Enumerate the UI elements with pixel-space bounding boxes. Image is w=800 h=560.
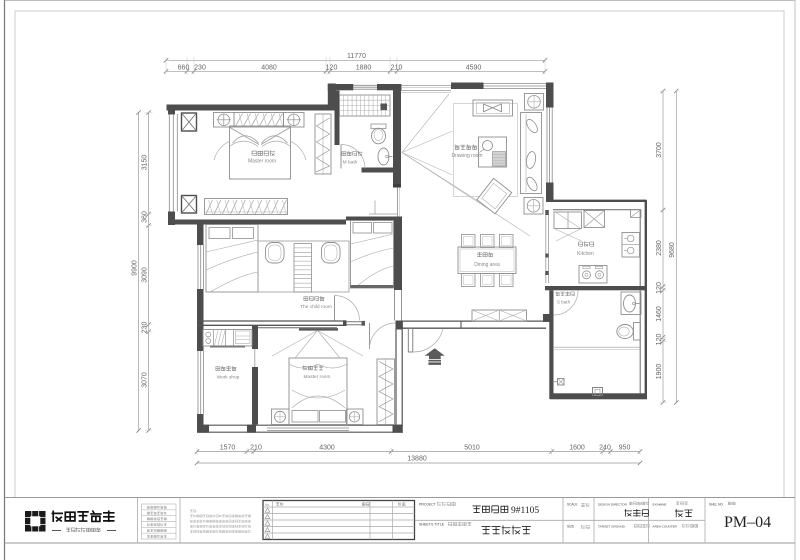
svg-text:SHEL NO.: SHEL NO. xyxy=(709,503,724,507)
svg-text:EXAMINE: EXAMINE xyxy=(653,503,667,507)
svg-text:11770: 11770 xyxy=(347,53,366,60)
svg-text:210: 210 xyxy=(250,445,262,452)
svg-text:Dining area: Dining area xyxy=(474,262,500,268)
svg-text:4590: 4590 xyxy=(466,64,482,71)
svg-text:13880: 13880 xyxy=(407,456,427,463)
svg-text:No.: No. xyxy=(265,503,270,507)
svg-text:120: 120 xyxy=(326,64,338,71)
svg-text:PM–04: PM–04 xyxy=(724,514,771,531)
svg-text:360: 360 xyxy=(142,211,149,223)
svg-text:4080: 4080 xyxy=(261,64,277,71)
svg-text:Master room: Master room xyxy=(304,374,331,380)
svg-text:Kitchen: Kitchen xyxy=(577,251,594,257)
svg-text:210: 210 xyxy=(391,64,403,71)
svg-text:S bath: S bath xyxy=(557,300,571,305)
svg-text:9#1105: 9#1105 xyxy=(511,506,539,516)
svg-text:3150: 3150 xyxy=(142,155,149,171)
svg-text:120: 120 xyxy=(656,282,663,294)
svg-text:3070: 3070 xyxy=(142,372,149,388)
svg-text:4300: 4300 xyxy=(319,445,335,452)
svg-text:1880: 1880 xyxy=(356,64,372,71)
svg-text:M bath: M bath xyxy=(343,160,358,166)
svg-text:2380: 2380 xyxy=(656,240,663,256)
svg-text:Work shop: Work shop xyxy=(217,375,240,381)
svg-text:240: 240 xyxy=(599,445,611,452)
svg-text:The child room: The child room xyxy=(300,304,332,310)
svg-text:TARGET GROUND: TARGET GROUND xyxy=(598,525,626,529)
svg-text:660: 660 xyxy=(178,64,190,71)
svg-text:5010: 5010 xyxy=(464,445,480,452)
svg-text:3090: 3090 xyxy=(142,267,149,283)
svg-text:SIZE: SIZE xyxy=(567,525,574,529)
svg-text:Drawing room: Drawing room xyxy=(451,153,482,159)
svg-text:AREA COUNTER: AREA COUNTER xyxy=(653,525,678,529)
svg-text:Master room: Master room xyxy=(248,159,276,165)
svg-text:1600: 1600 xyxy=(569,445,585,452)
svg-text:1460: 1460 xyxy=(656,306,663,322)
svg-text:9900: 9900 xyxy=(132,260,139,276)
svg-text:DESIGN DIRECTOR: DESIGN DIRECTOR xyxy=(598,503,628,507)
svg-text:230: 230 xyxy=(194,64,206,71)
svg-text:120: 120 xyxy=(656,334,663,346)
svg-text:3700: 3700 xyxy=(656,142,663,158)
svg-text:1900: 1900 xyxy=(656,364,663,380)
svg-text:1570: 1570 xyxy=(220,445,236,452)
svg-text:950: 950 xyxy=(619,445,631,452)
svg-text:SHEETS TITLE: SHEETS TITLE xyxy=(419,523,445,527)
svg-text:PROJECT: PROJECT xyxy=(419,503,437,507)
svg-text:SCALE: SCALE xyxy=(567,503,577,507)
svg-text:9680: 9680 xyxy=(669,242,676,258)
svg-text:230: 230 xyxy=(142,322,149,334)
